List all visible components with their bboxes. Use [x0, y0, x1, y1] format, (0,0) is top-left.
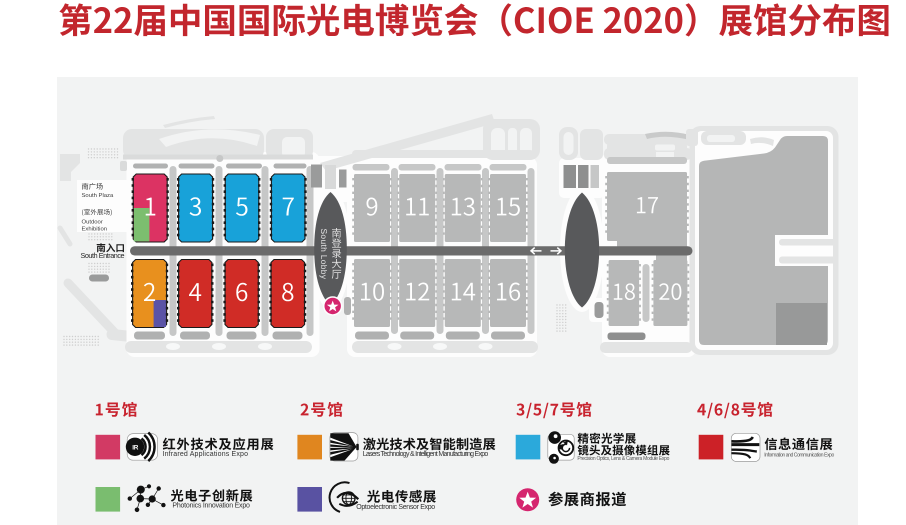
svg-text:Photonics Innovation Expo: Photonics Innovation Expo	[172, 503, 250, 510]
svg-text:South Plaza: South Plaza	[82, 193, 114, 199]
svg-text:Outdoor: Outdoor	[82, 220, 103, 226]
svg-text:IR: IR	[132, 444, 138, 451]
svg-text:Information and Communication: Information and Communication Expo	[764, 452, 834, 458]
svg-text:South Lobby: South Lobby	[319, 229, 329, 280]
svg-text:Exhibition: Exhibition	[82, 227, 108, 233]
svg-text:Precision Optics, Lens & Camer: Precision Optics, Lens & Camera Module E…	[577, 456, 669, 462]
svg-text:Infrared Applications Expo: Infrared Applications Expo	[163, 451, 249, 458]
svg-text:Lasers Technology & Intelligen: Lasers Technology & Intelligent Manufact…	[363, 451, 489, 458]
svg-text:Optoelectronic Sensor Expo: Optoelectronic Sensor Expo	[356, 504, 435, 511]
svg-text:South Entrance: South Entrance	[81, 251, 125, 260]
